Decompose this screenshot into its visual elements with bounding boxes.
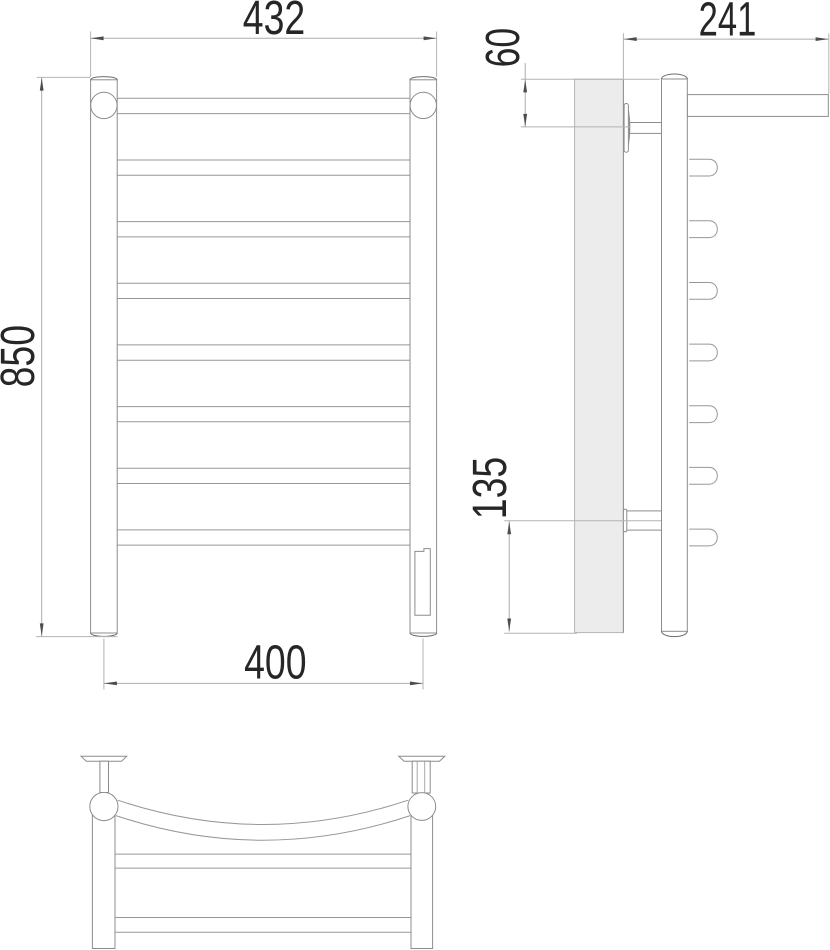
svg-text:400: 400 xyxy=(244,636,306,690)
svg-text:241: 241 xyxy=(699,0,757,46)
svg-text:135: 135 xyxy=(464,457,518,519)
svg-text:432: 432 xyxy=(243,0,305,45)
svg-text:60: 60 xyxy=(476,28,529,68)
svg-text:850: 850 xyxy=(0,325,45,387)
